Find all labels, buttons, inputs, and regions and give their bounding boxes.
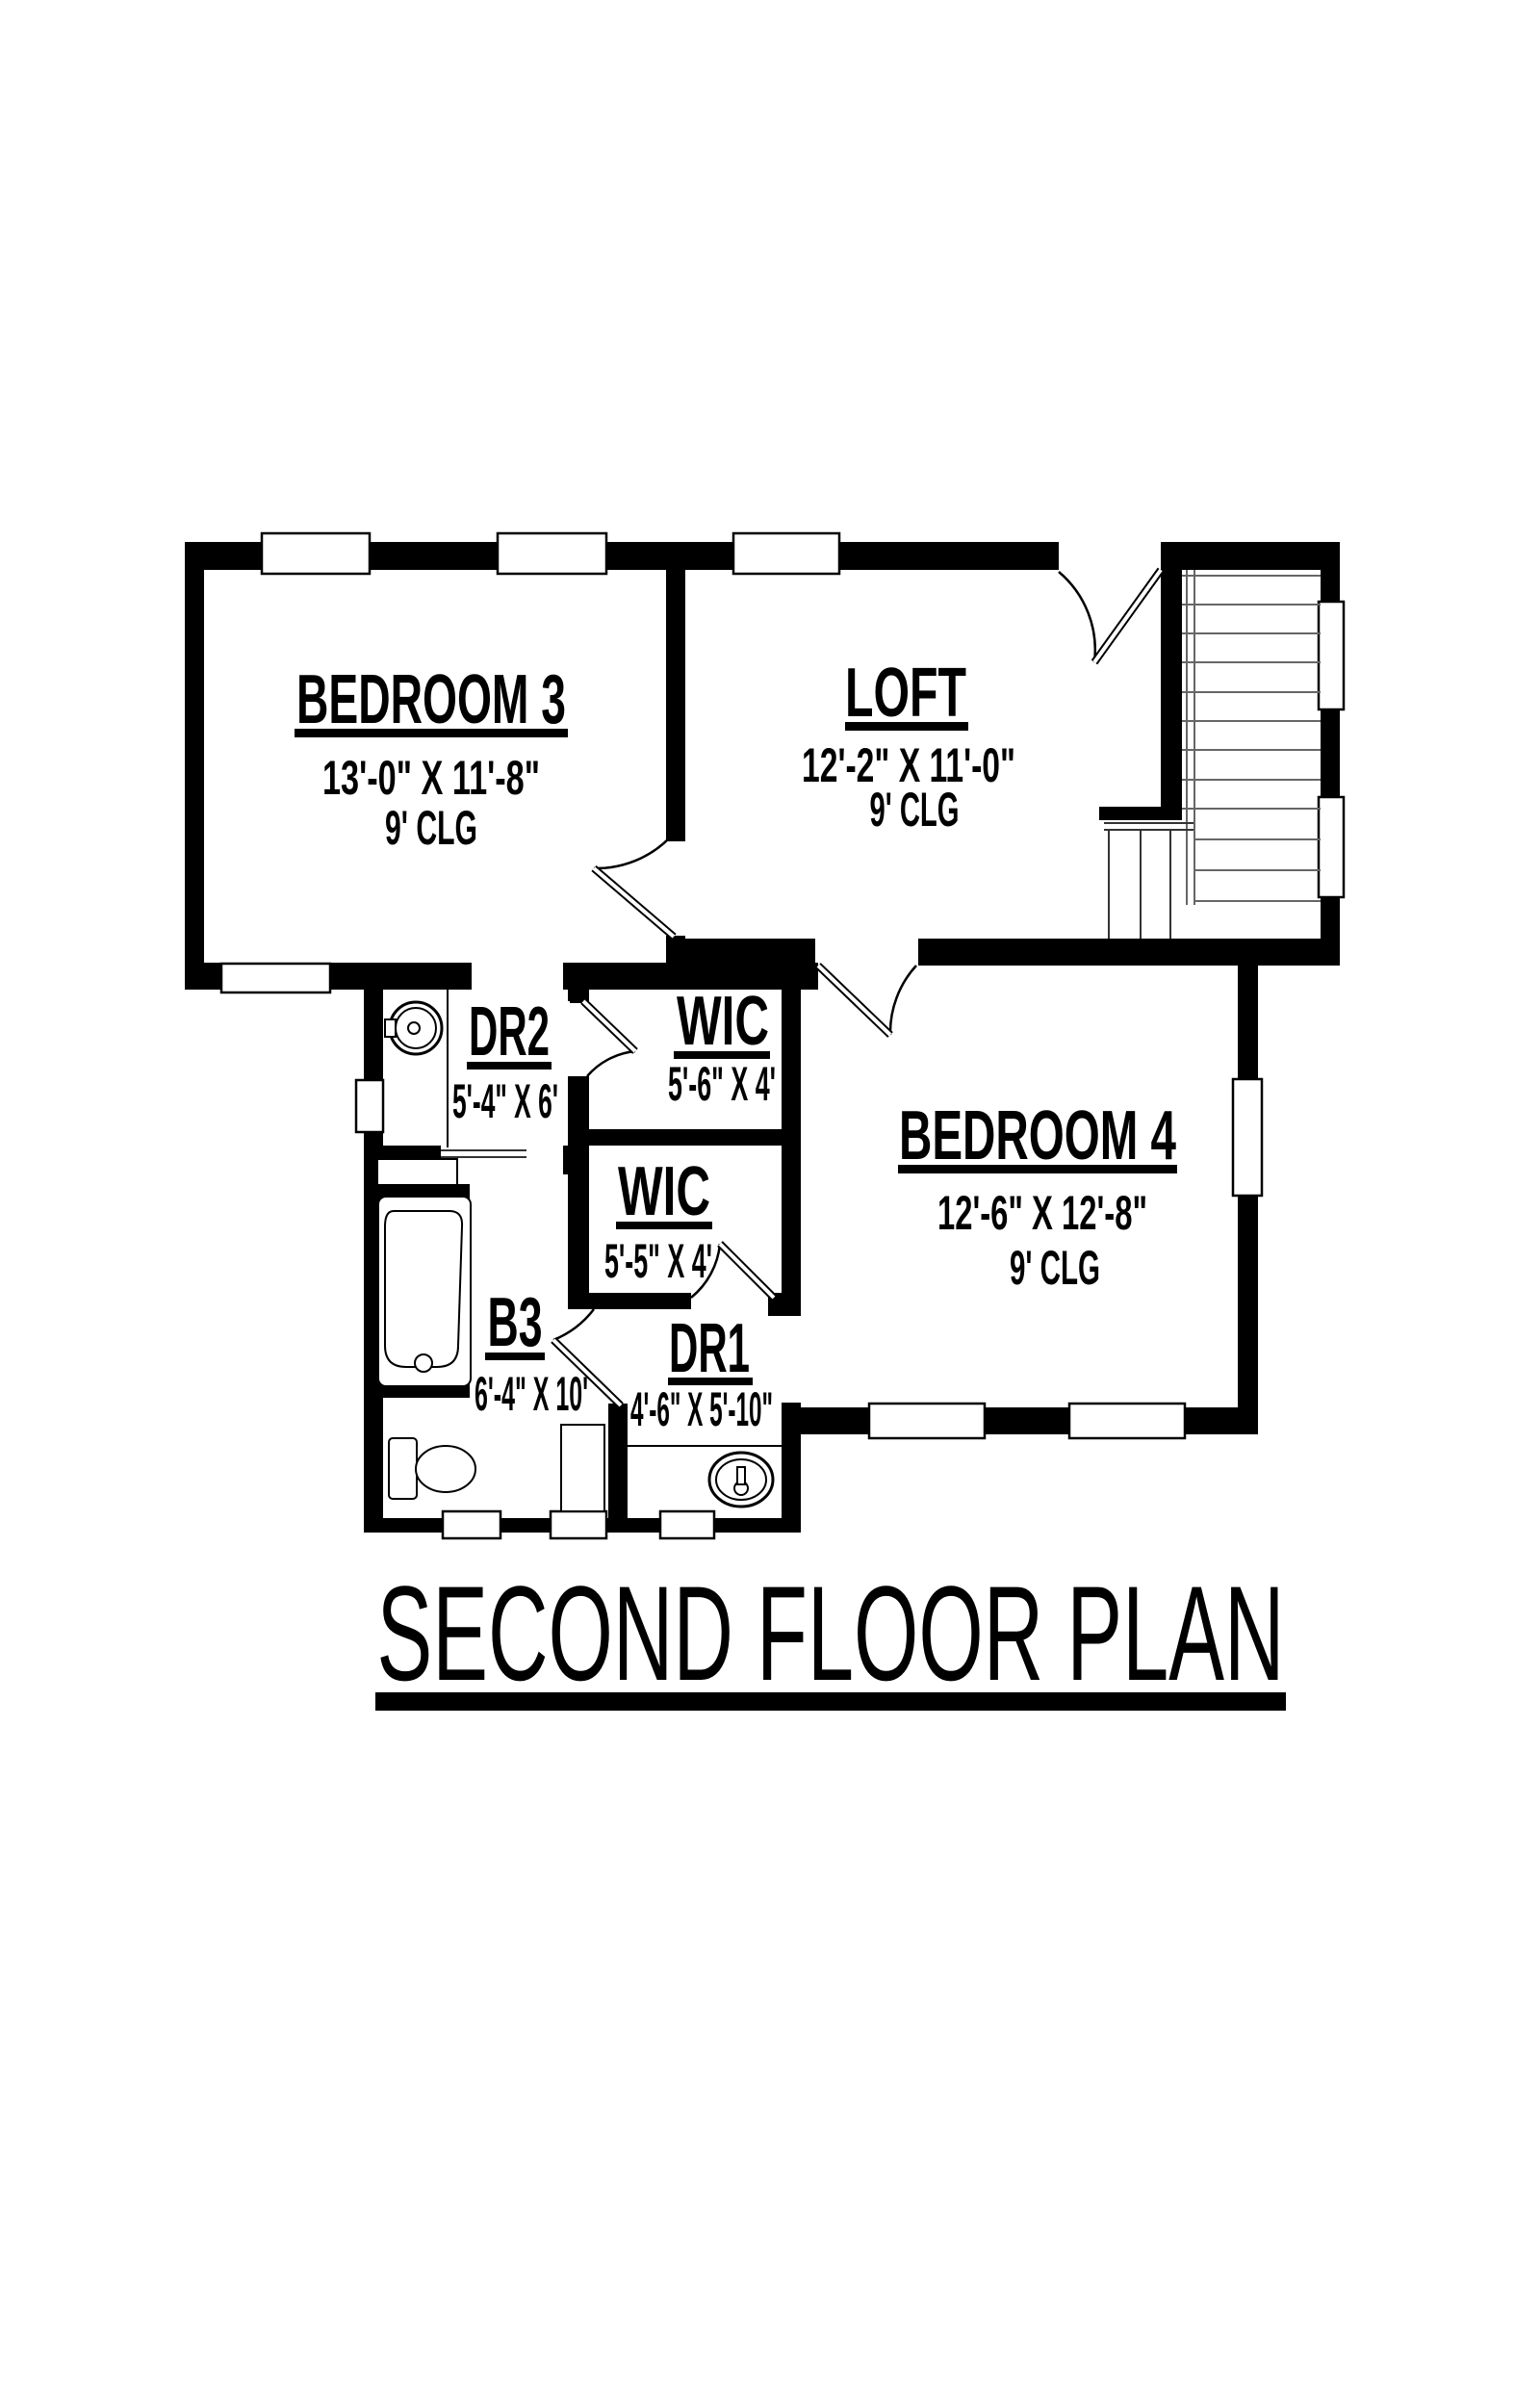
bedroom3-door-arc (594, 838, 670, 868)
stair-stringer (1187, 570, 1194, 905)
room-label-b3: B3 (488, 1284, 543, 1361)
room-label-wic2: WIC (618, 1153, 710, 1230)
b3-door-arc (553, 1309, 594, 1340)
wall-bedroom4-right (1238, 966, 1258, 1434)
dr2-b3-pocket-opening (441, 1150, 526, 1157)
wall-left-bedroom3 (185, 542, 204, 990)
window-stair-right-1 (1319, 602, 1344, 709)
stair-railing-balusters (1109, 830, 1170, 939)
wall-wic2-bottom (568, 1293, 691, 1309)
wall-dr2-bottom-stub (563, 1146, 587, 1174)
dims-bedroom4: 12'-6" X 12'-8" (937, 1186, 1147, 1240)
title-underline (375, 1692, 1286, 1711)
window-stair-right-2 (1319, 797, 1344, 897)
title-block: SECOND FLOOR PLAN (375, 1558, 1286, 1711)
window-bedroom4-bottom-1 (869, 1404, 985, 1438)
room-label-dr1: DR1 (669, 1310, 750, 1387)
dims-wic2: 5'-5" X 4' (604, 1234, 712, 1288)
stair-treads-lower (1193, 839, 1321, 901)
window-bedroom3-bottom (221, 964, 330, 992)
window-bedroom4-bottom-2 (1069, 1404, 1185, 1438)
dims-dr1: 4'-6" X 5'-10" (630, 1382, 773, 1436)
dims-dr2: 5'-4" X 6' (452, 1074, 558, 1128)
window-bedroom4-right (1233, 1079, 1262, 1196)
window-b3-bottom-2 (551, 1511, 606, 1538)
loft-door-arc (1059, 572, 1095, 662)
window-b3-bottom-1 (443, 1511, 500, 1538)
toilet-bowl (416, 1446, 475, 1492)
window-bath-left (356, 1080, 383, 1132)
underline-b3 (485, 1353, 545, 1360)
dims-b3: 6'-4" X 10' (475, 1367, 588, 1421)
toilet-tank (389, 1438, 417, 1499)
wall-stair-inner (1161, 570, 1182, 820)
wall-wic1-wic2-divider (568, 1129, 801, 1146)
floor-plan-drawing: BEDROOM 3 13'-0" X 11'-8" 9' CLG LOFT 12… (0, 0, 1540, 2397)
window-top-2 (498, 533, 606, 574)
ceiling-loft: 9' CLG (870, 783, 960, 837)
underline-loft (845, 722, 968, 731)
dims-bedroom3: 13'-0" X 11'-8" (322, 751, 540, 805)
room-label-loft: LOFT (845, 655, 966, 732)
room-label-wic1: WIC (677, 983, 769, 1060)
underline-bedroom3 (295, 729, 568, 737)
page-title: SECOND FLOOR PLAN (377, 1558, 1285, 1709)
room-label-dr2: DR2 (469, 993, 550, 1070)
b3-linen-cabinet (377, 1159, 457, 1185)
underline-bedroom4 (898, 1165, 1177, 1173)
ceiling-bedroom3: 9' CLG (385, 801, 477, 855)
dims-wic1: 5'-6" X 4' (668, 1057, 776, 1111)
ceiling-bedroom4: 9' CLG (1010, 1241, 1100, 1295)
b3-cabinet (561, 1425, 604, 1511)
bathtub-drain (415, 1354, 432, 1372)
wic1-door-arc (587, 1051, 635, 1076)
staircase (1104, 570, 1321, 939)
wall-b3-dr1-divider (608, 1404, 628, 1533)
wall-top-right (1161, 542, 1340, 570)
wall-stair-landing (1099, 807, 1182, 820)
floor-plan-page: BEDROOM 3 13'-0" X 11'-8" 9' CLG LOFT 12… (0, 0, 1540, 2397)
wall-bedroom3-loft-divider (666, 570, 685, 841)
underline-dr2 (467, 1062, 552, 1070)
window-dr1-bottom (660, 1511, 714, 1538)
window-top-3 (733, 533, 839, 574)
stair-railing-top (1104, 823, 1193, 830)
dr2-sink-faucet (385, 1019, 396, 1037)
bedroom4-door-arc (890, 966, 916, 1035)
window-top-1 (262, 533, 370, 574)
wall-bedroom3-door-stub (666, 936, 685, 966)
wall-dr2-wic-divider (568, 1076, 589, 1309)
room-label-bedroom4: BEDROOM 4 (899, 1097, 1176, 1174)
wall-bedroom4-bottom (782, 1407, 1258, 1434)
stair-treads-upper (1182, 576, 1321, 809)
wall-loft-bottom-right (918, 939, 1340, 966)
bathtub-basin (385, 1211, 462, 1367)
room-label-bedroom3: BEDROOM 3 (296, 661, 566, 738)
underline-wic2 (616, 1222, 712, 1229)
wall-loft-bottom-left (666, 939, 815, 966)
